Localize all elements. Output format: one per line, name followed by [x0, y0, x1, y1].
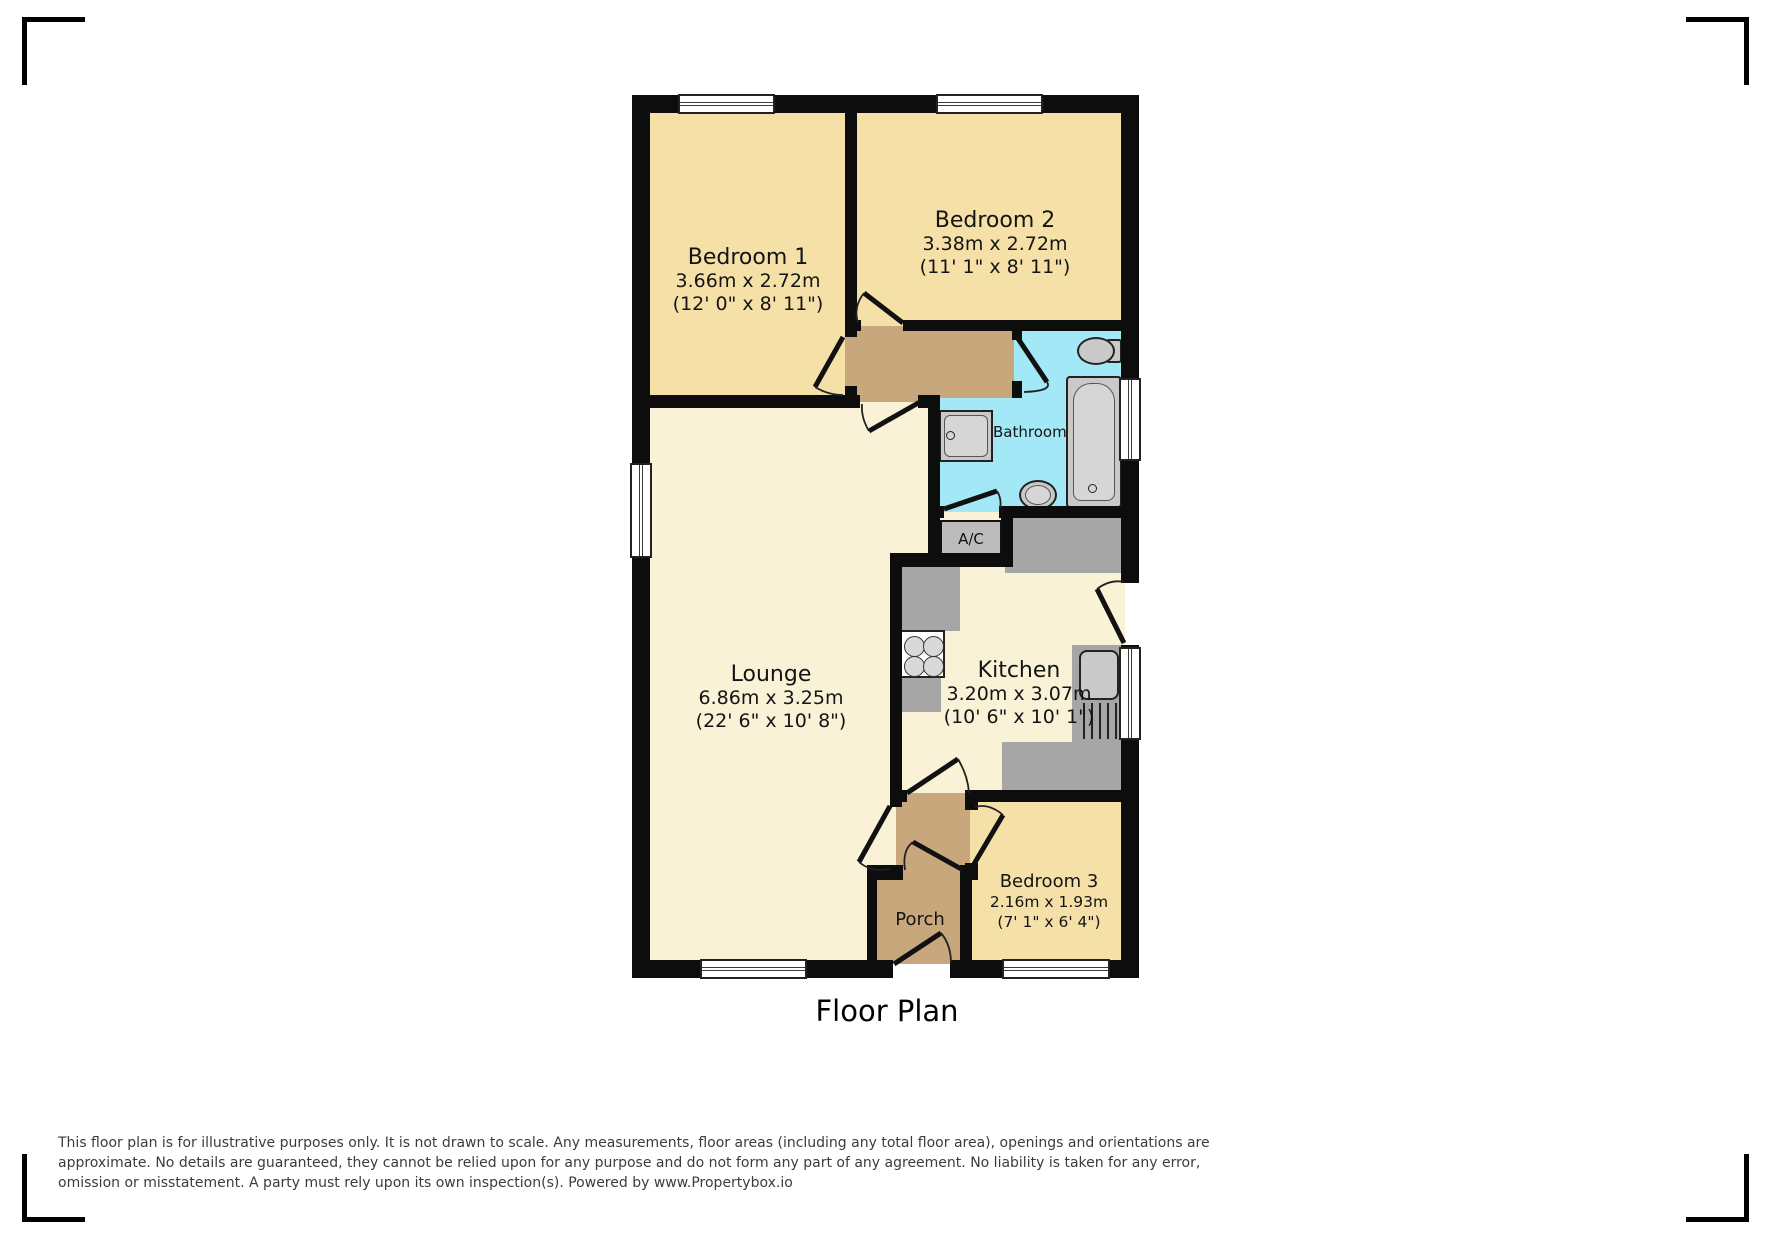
disclaimer-line: This floor plan is for illustrative purp…: [58, 1133, 1210, 1153]
room-name: Lounge: [696, 663, 847, 687]
wall: [890, 553, 1013, 567]
room-name: Bedroom 3: [990, 871, 1108, 892]
window-lounge-bottom: [700, 959, 807, 979]
wall: [1012, 381, 1022, 398]
hob-icon: [899, 630, 945, 678]
room-size-metric: 6.86m x 3.25m: [696, 687, 847, 710]
room-size-metric: 3.38m x 2.72m: [920, 233, 1071, 256]
room-size-imperial: (12' 0" x 8' 11"): [673, 293, 824, 316]
disclaimer-line: approximate. No details are guaranteed, …: [58, 1153, 1210, 1173]
room-size-metric: 2.16m x 1.93m: [990, 892, 1108, 912]
kitchen-label: Kitchen 3.20m x 3.07m (10' 6" x 10' 1"): [944, 659, 1095, 729]
wall: [928, 395, 940, 567]
room-name: Kitchen: [944, 659, 1095, 683]
vestibule-floor: [896, 793, 970, 873]
room-name: Bedroom 2: [920, 209, 1071, 233]
disclaimer-line: omission or misstatement. A party must r…: [58, 1173, 1210, 1193]
floorplan-page: { "title": "Floor Plan", "rooms": [ {"la…: [0, 0, 1771, 1239]
room-size-metric: 3.66m x 2.72m: [673, 270, 824, 293]
wall: [632, 395, 860, 408]
room-size-metric: 3.20m x 3.07m: [944, 683, 1095, 706]
room-size-imperial: (7' 1" x 6' 4"): [990, 912, 1108, 932]
room-size-imperial: (11' 1" x 8' 11"): [920, 256, 1071, 279]
porch-label: Porch: [895, 909, 945, 930]
page-title: Floor Plan: [634, 994, 1140, 1028]
wall: [890, 553, 902, 807]
kitchen-counter-bottom: [1002, 742, 1122, 795]
lounge-label: Lounge 6.86m x 3.25m (22' 6" x 10' 8"): [696, 663, 847, 733]
bathtub-drain-icon: [1088, 484, 1097, 493]
window-bedroom2-top: [936, 94, 1043, 114]
window-bathroom-right: [1119, 378, 1141, 461]
wall: [928, 506, 944, 518]
wall: [845, 113, 857, 337]
room-size-imperial: (22' 6" x 10' 8"): [696, 710, 847, 733]
wall: [960, 865, 972, 960]
airing-cupboard: A/C: [940, 520, 1002, 557]
wall: [1012, 331, 1022, 340]
kitchen-counter-left: [902, 561, 960, 631]
basin-inner: [1025, 485, 1051, 505]
kitchen-counter-below-hob: [902, 677, 941, 712]
wall: [903, 320, 1122, 331]
window-kitchen-right: [1119, 647, 1141, 740]
wall: [999, 506, 1139, 518]
corner-bracket-top-right: [1686, 17, 1749, 85]
bedroom-3-label: Bedroom 3 2.16m x 1.93m (7' 1" x 6' 4"): [990, 871, 1108, 932]
wall: [965, 790, 1139, 802]
hallway-floor: [845, 326, 1017, 402]
wall: [890, 790, 907, 802]
bedroom-2-label: Bedroom 2 3.38m x 2.72m (11' 1" x 8' 11"…: [920, 209, 1071, 279]
window-bedroom3-bottom: [1002, 959, 1110, 979]
corner-bracket-top-left: [22, 17, 85, 85]
wall: [867, 865, 877, 960]
room-name: Bedroom 1: [673, 246, 824, 270]
airing-cupboard-label: A/C: [958, 530, 984, 548]
shower-drain-icon: [946, 431, 955, 440]
window-bedroom1-top: [678, 94, 775, 114]
bathroom-label: Bathroom: [993, 423, 1067, 441]
room-size-imperial: (10' 6" x 10' 1"): [944, 706, 1095, 729]
wall: [845, 320, 861, 331]
corner-bracket-bottom-right: [1686, 1154, 1749, 1222]
kitchen-counter-top: [1005, 518, 1122, 573]
disclaimer-text: This floor plan is for illustrative purp…: [58, 1133, 1210, 1193]
bedroom-1-label: Bedroom 1 3.66m x 2.72m (12' 0" x 8' 11"…: [673, 246, 824, 316]
toilet-icon: [1077, 337, 1115, 365]
wall: [1001, 518, 1013, 558]
wall: [965, 790, 978, 810]
window-lounge-left: [630, 463, 652, 558]
